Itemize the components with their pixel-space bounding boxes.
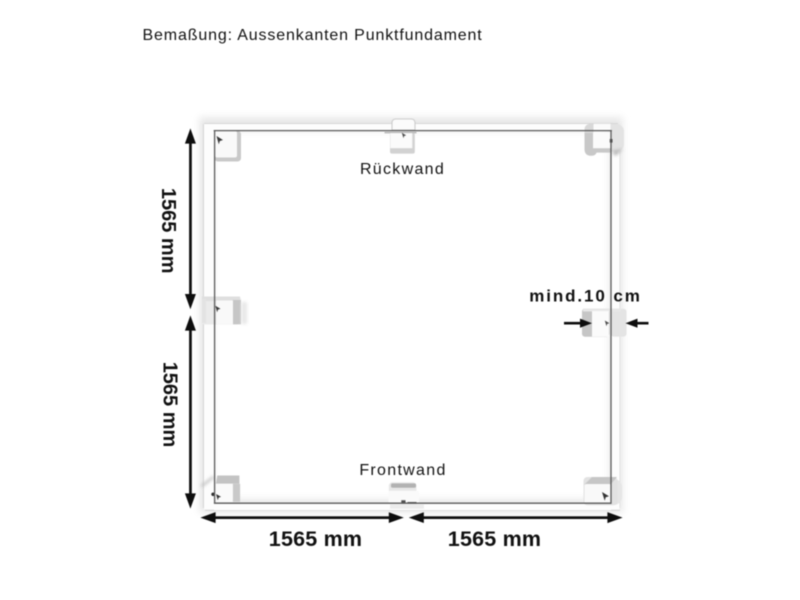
svg-text:1565 mm: 1565 mm	[159, 362, 181, 448]
svg-text:Rückwand: Rückwand	[360, 161, 445, 178]
svg-text:Bemaßung: Aussenkanten Punktfu: Bemaßung: Aussenkanten Punktfundament	[143, 27, 483, 44]
svg-text:mind.10 cm: mind.10 cm	[529, 287, 642, 306]
svg-text:1565 mm: 1565 mm	[157, 188, 179, 274]
svg-text:1565 mm: 1565 mm	[269, 527, 362, 551]
svg-text:Frontwand: Frontwand	[359, 462, 446, 479]
svg-text:1565 mm: 1565 mm	[448, 527, 541, 551]
